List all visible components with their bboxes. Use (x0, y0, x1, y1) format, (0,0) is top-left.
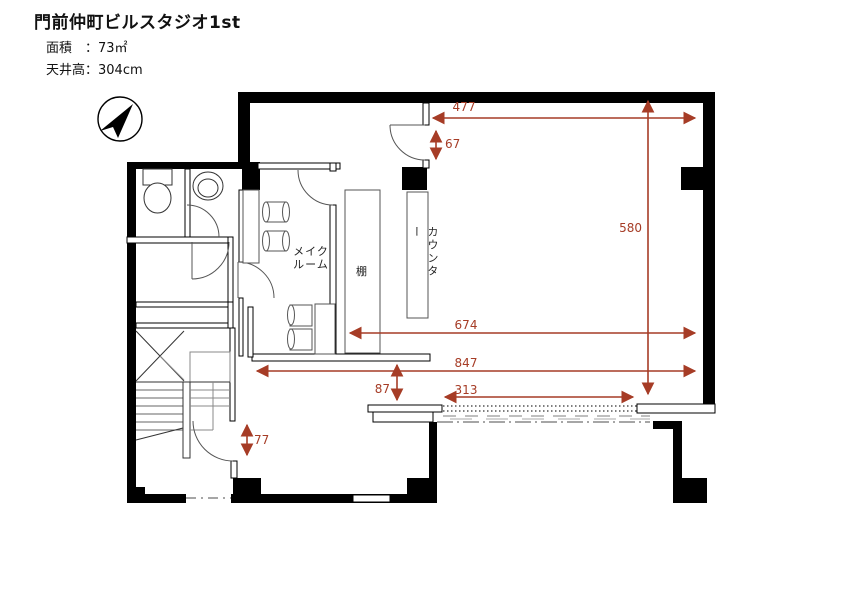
makeup-room-label: メイク ルーム (284, 245, 338, 271)
dim-674-label: 674 (434, 318, 498, 332)
dim-477-label: 477 (432, 100, 496, 114)
makeup-room-label-line2: ルーム (284, 258, 338, 271)
door-arc (390, 125, 425, 160)
door-pocket (368, 405, 442, 412)
bottom-window (353, 495, 390, 502)
dim-77-label: 77 (254, 433, 269, 447)
sliding-panel (637, 404, 715, 413)
door-arc (192, 242, 229, 279)
shelf-label: 棚 (352, 263, 372, 279)
counter-label: カウンター (408, 226, 440, 286)
door-pocket (373, 412, 433, 422)
makeup-counter (243, 190, 259, 263)
staircase (136, 331, 230, 458)
sliding-doors (368, 404, 715, 422)
door-arc (238, 262, 274, 298)
door-arc (187, 205, 219, 237)
toilet-fixtures (143, 169, 223, 213)
toilet2-icon (193, 172, 223, 200)
dimension-lines (247, 101, 695, 455)
dim-67-label: 67 (445, 137, 460, 151)
dim-313-label: 313 (434, 383, 498, 397)
door-arc (298, 170, 333, 205)
table (315, 304, 335, 354)
dim-580-label: 580 (606, 221, 642, 235)
dim-847-label: 847 (434, 356, 498, 370)
floor-plan-svg (0, 0, 841, 595)
makeup-room-label-line1: メイク (284, 245, 338, 258)
north-arrow-icon (98, 97, 142, 141)
dim-87-label: 87 (362, 382, 390, 396)
floor-plan-page: 門前仲町ビルスタジオ1st 面積 ：73㎡ 天井高：304cm (0, 0, 841, 595)
toilet-bowl-icon (144, 183, 171, 213)
